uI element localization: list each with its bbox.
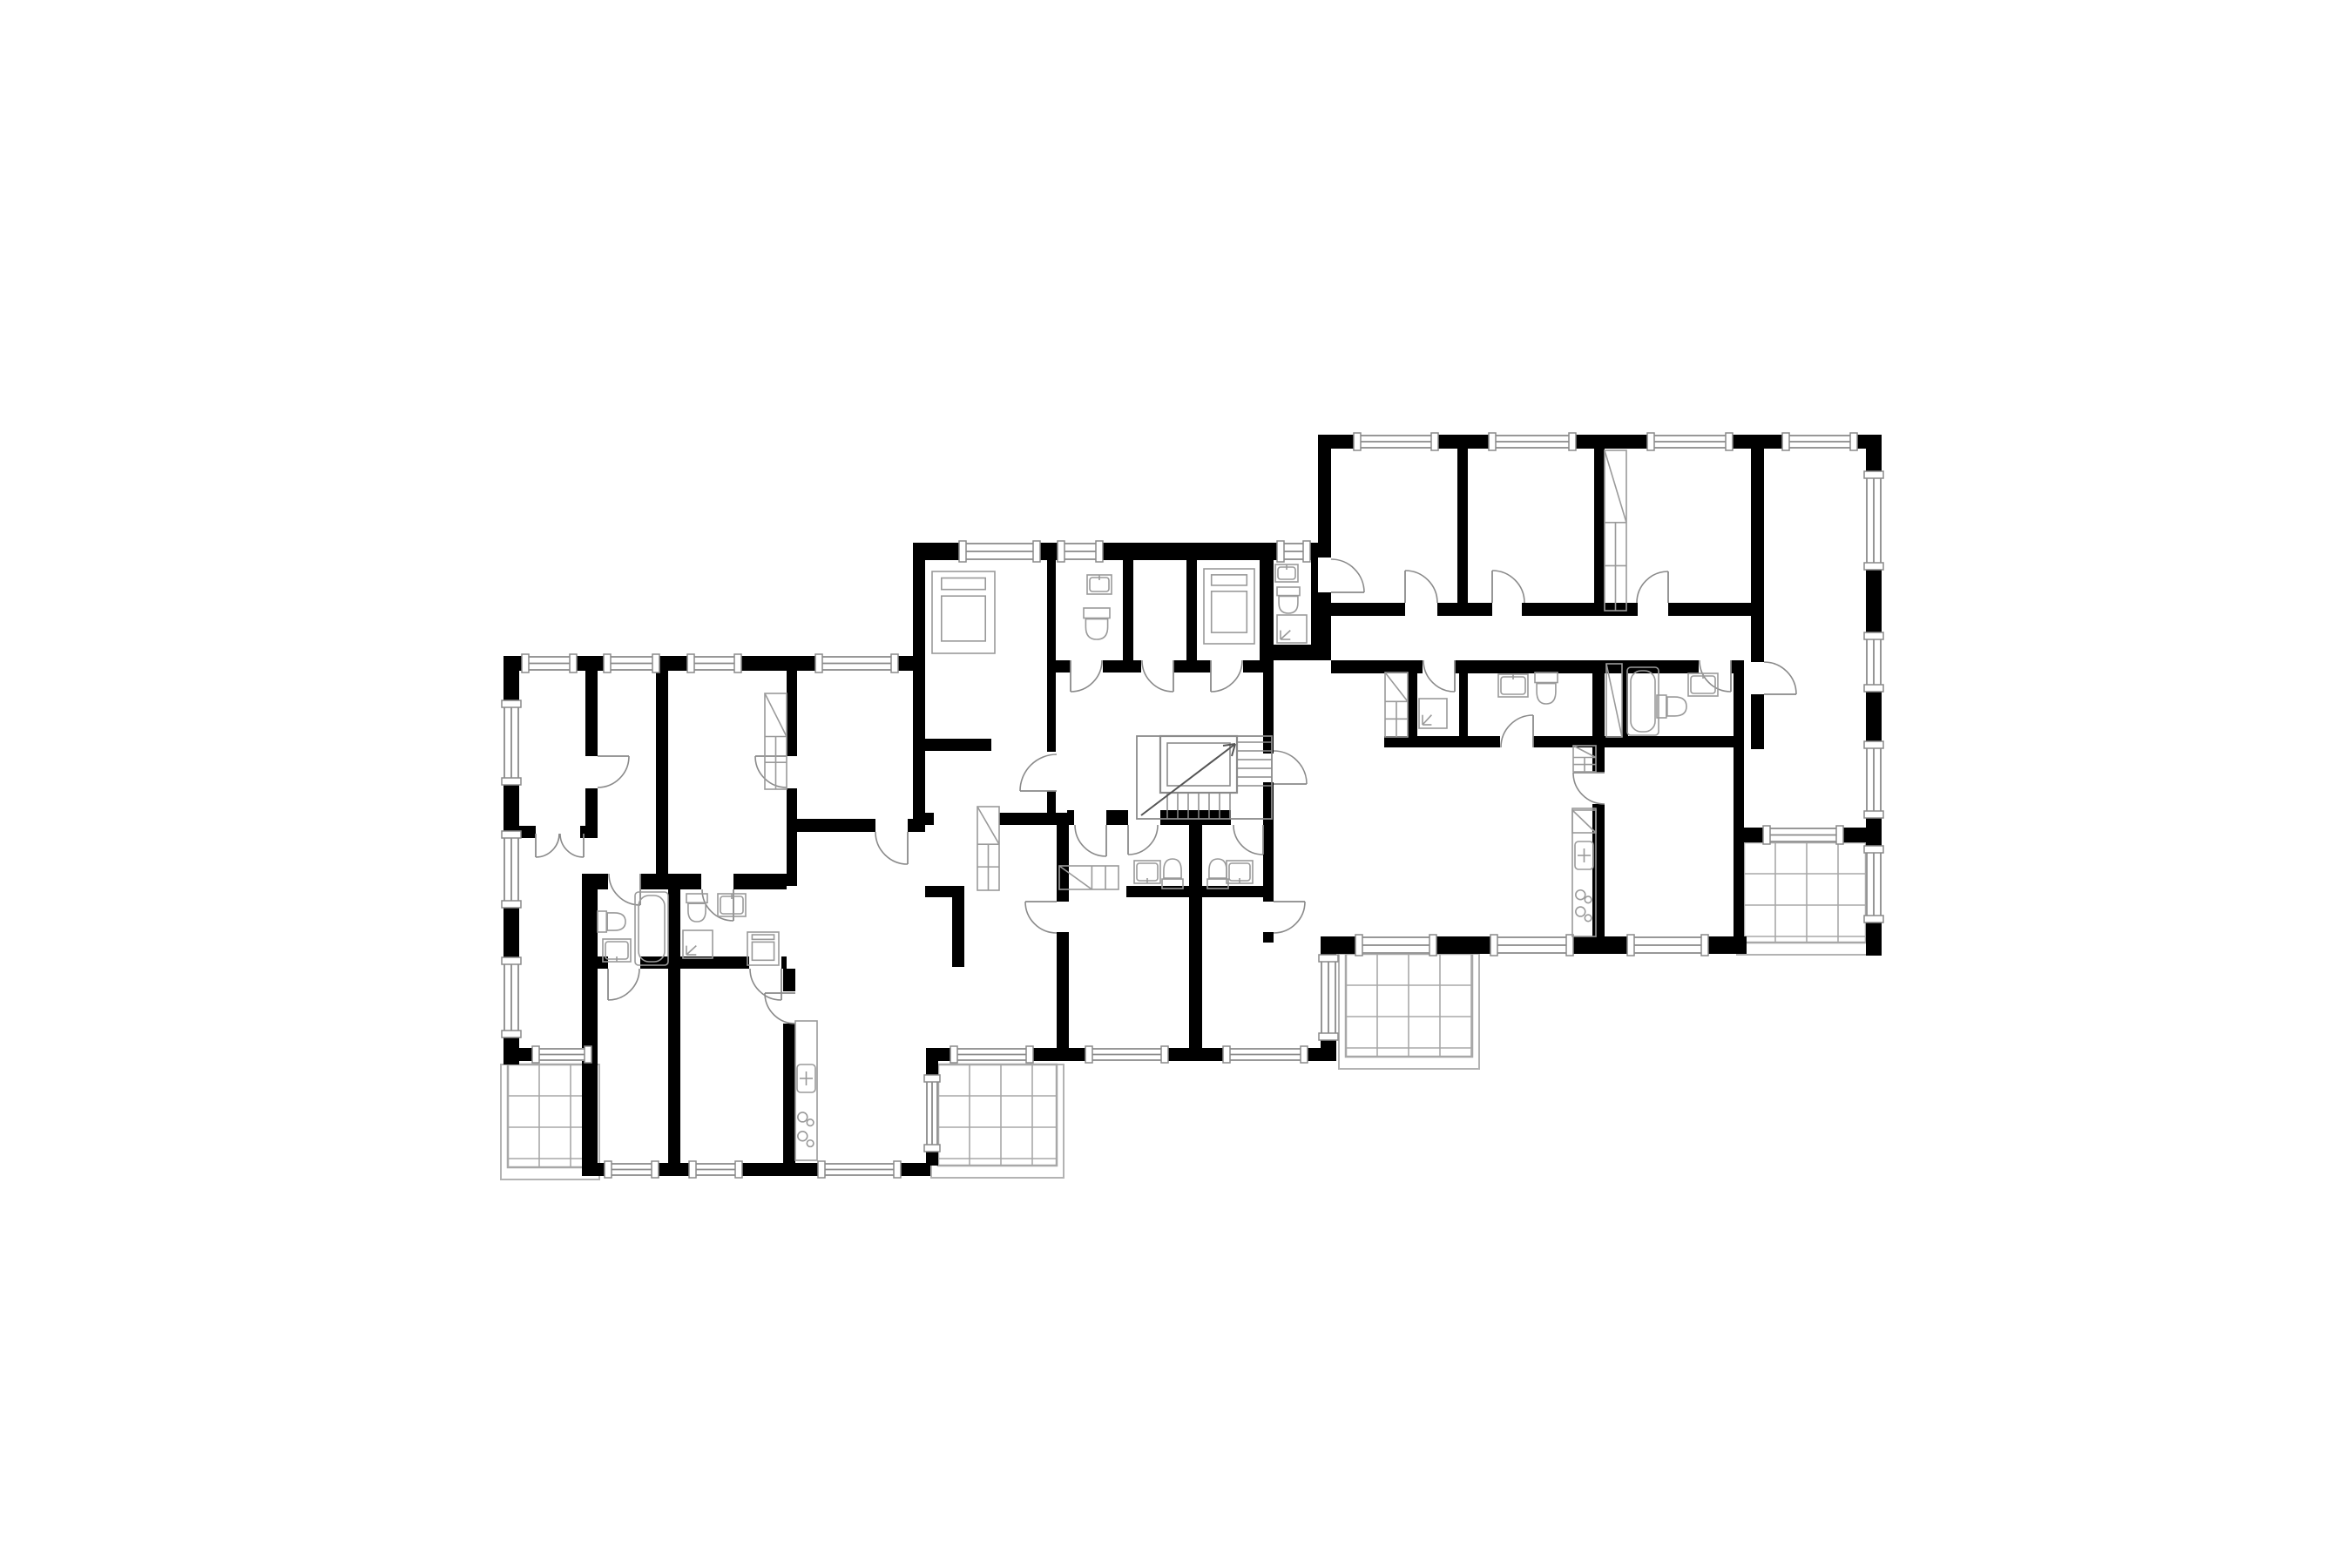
window-jamb bbox=[734, 654, 741, 672]
wall-segment bbox=[1067, 810, 1074, 825]
window-jamb bbox=[1864, 563, 1883, 570]
wall-segment bbox=[1331, 603, 1405, 616]
window-jamb bbox=[604, 654, 611, 672]
window bbox=[1864, 471, 1883, 570]
window-jamb bbox=[1701, 935, 1708, 956]
wall-segment bbox=[1455, 660, 1699, 673]
window bbox=[1782, 433, 1857, 450]
balcony bbox=[1737, 842, 1873, 955]
window-jamb bbox=[1033, 541, 1040, 562]
wall-segment bbox=[504, 671, 519, 704]
wall-segment bbox=[897, 1163, 930, 1176]
window-jamb bbox=[585, 1046, 591, 1063]
wall-segment bbox=[585, 671, 598, 756]
window-jamb bbox=[1429, 935, 1436, 956]
window-jamb bbox=[1864, 741, 1883, 748]
window-jamb bbox=[1864, 916, 1883, 923]
wall-segment bbox=[1126, 886, 1263, 897]
window-jamb bbox=[1490, 935, 1497, 956]
window-jamb bbox=[818, 1161, 825, 1178]
wall-segment bbox=[1592, 804, 1605, 936]
wall-segment bbox=[783, 969, 795, 991]
window-jamb bbox=[735, 1161, 742, 1178]
window bbox=[1627, 935, 1708, 956]
window-jamb bbox=[1161, 1046, 1168, 1063]
window bbox=[1490, 935, 1573, 956]
window bbox=[815, 654, 898, 672]
wall-segment bbox=[733, 874, 787, 889]
window-jamb bbox=[1864, 685, 1883, 692]
wall-segment bbox=[656, 671, 668, 874]
window-jamb bbox=[1569, 433, 1576, 450]
window-jamb bbox=[1223, 1046, 1230, 1063]
wall-segment bbox=[504, 1034, 519, 1064]
wall-segment bbox=[1186, 560, 1197, 660]
wall-segment bbox=[1436, 936, 1494, 954]
wall-segment bbox=[580, 826, 598, 838]
wall-segment bbox=[1866, 814, 1882, 849]
window bbox=[1319, 955, 1338, 1040]
window-jamb bbox=[502, 1031, 521, 1037]
window-jamb bbox=[1303, 541, 1310, 562]
wall-segment bbox=[1318, 435, 1357, 449]
window-jamb bbox=[1058, 541, 1064, 562]
floor-plan-page bbox=[0, 0, 2352, 1568]
wall-segment bbox=[1331, 660, 1423, 673]
window bbox=[1864, 632, 1883, 692]
wall-segment bbox=[504, 781, 519, 835]
balcony-deck bbox=[938, 1064, 1057, 1166]
wall-segment bbox=[1384, 736, 1500, 747]
wall-segment bbox=[582, 874, 598, 1163]
floor-plan-drawing bbox=[0, 0, 2352, 1568]
wall-segment bbox=[640, 874, 701, 889]
window-jamb bbox=[502, 831, 521, 838]
window-jamb bbox=[1277, 541, 1284, 562]
wall-segment bbox=[1734, 828, 1744, 943]
wall-segment bbox=[1734, 664, 1744, 828]
window bbox=[1277, 541, 1310, 562]
window bbox=[502, 831, 521, 908]
wall-segment bbox=[1318, 616, 1331, 660]
wall-segment bbox=[1057, 932, 1069, 1048]
wall-segment bbox=[1123, 560, 1133, 660]
wall-segment bbox=[1173, 660, 1211, 672]
window-jamb bbox=[891, 654, 898, 672]
window bbox=[1763, 826, 1843, 844]
wall-segment bbox=[1457, 449, 1468, 603]
wall-segment bbox=[787, 671, 797, 756]
wall-segment bbox=[1751, 694, 1764, 749]
wall-segment bbox=[1165, 1048, 1227, 1061]
wall-segment bbox=[598, 874, 608, 889]
wall-segment bbox=[1729, 435, 1786, 449]
window bbox=[1223, 1046, 1308, 1063]
window bbox=[502, 957, 521, 1037]
window bbox=[502, 700, 521, 785]
wall-segment bbox=[781, 956, 787, 969]
window bbox=[959, 541, 1040, 562]
window-jamb bbox=[1355, 935, 1362, 956]
window-jamb bbox=[1026, 1046, 1033, 1063]
window-jamb bbox=[1864, 846, 1883, 853]
wall-segment bbox=[1056, 660, 1071, 672]
balcony-deck bbox=[1744, 842, 1866, 943]
window-jamb bbox=[1782, 433, 1789, 450]
window-jamb bbox=[1850, 433, 1857, 450]
window-jamb bbox=[924, 1075, 940, 1082]
balcony-deck bbox=[508, 1064, 592, 1167]
window-jamb bbox=[924, 1145, 940, 1152]
wall-segment bbox=[668, 889, 680, 956]
wall-segment bbox=[913, 813, 934, 825]
wall-segment bbox=[1533, 736, 1734, 747]
window-jamb bbox=[689, 1161, 696, 1178]
wall-segment bbox=[926, 1048, 938, 1078]
window bbox=[605, 1161, 659, 1178]
window-jamb bbox=[522, 654, 529, 672]
wall-segment bbox=[1751, 449, 1764, 662]
window-jamb bbox=[1085, 1046, 1092, 1063]
wall-segment bbox=[1854, 435, 1882, 449]
wall-segment bbox=[1047, 560, 1056, 752]
window bbox=[1058, 541, 1103, 562]
wall-segment bbox=[925, 739, 991, 751]
window bbox=[1354, 433, 1438, 450]
window-jamb bbox=[1566, 935, 1573, 956]
wall-segment bbox=[999, 813, 1067, 825]
window-jamb bbox=[1627, 935, 1634, 956]
window-jamb bbox=[1864, 471, 1883, 478]
window-jamb bbox=[1096, 541, 1103, 562]
wall-segment bbox=[1311, 560, 1318, 645]
window bbox=[1085, 1046, 1168, 1063]
window bbox=[689, 1161, 742, 1178]
wall-segment bbox=[668, 969, 680, 1163]
wall-segment bbox=[504, 904, 519, 961]
window bbox=[1864, 846, 1883, 923]
window-jamb bbox=[959, 541, 966, 562]
wall-segment bbox=[1522, 603, 1638, 616]
wall-segment bbox=[797, 819, 875, 832]
wall-segment bbox=[1160, 810, 1231, 825]
window-jamb bbox=[1864, 811, 1883, 818]
window-jamb bbox=[502, 700, 521, 707]
balcony bbox=[931, 1064, 1064, 1178]
window-jamb bbox=[1647, 433, 1654, 450]
wall-segment bbox=[1106, 810, 1128, 825]
window-jamb bbox=[605, 1161, 612, 1178]
wall-segment bbox=[925, 886, 964, 897]
window-jamb bbox=[1726, 433, 1733, 450]
wall-segment bbox=[1866, 566, 1882, 636]
wall-segment bbox=[1099, 543, 1281, 560]
window-jamb bbox=[1864, 632, 1883, 639]
wall-segment bbox=[1263, 932, 1274, 943]
wall-segment bbox=[783, 1024, 795, 1163]
wall-segment bbox=[1030, 1048, 1089, 1061]
window-jamb bbox=[687, 654, 694, 672]
wall-segment bbox=[739, 1163, 821, 1176]
window-jamb bbox=[570, 654, 577, 672]
window bbox=[1647, 433, 1733, 450]
wall-segment bbox=[913, 560, 925, 825]
wall-segment bbox=[1435, 435, 1492, 449]
window-jamb bbox=[1489, 433, 1496, 450]
window bbox=[1489, 433, 1576, 450]
window-jamb bbox=[502, 957, 521, 964]
window-jamb bbox=[652, 1161, 659, 1178]
window-jamb bbox=[1301, 1046, 1308, 1063]
window bbox=[687, 654, 741, 672]
wall-segment bbox=[913, 543, 963, 560]
window-jamb bbox=[502, 778, 521, 785]
wall-segment bbox=[1437, 603, 1492, 616]
wall-segment bbox=[1705, 936, 1747, 954]
wall-segment bbox=[585, 788, 598, 826]
wall-segment bbox=[1318, 449, 1331, 558]
window-jamb bbox=[1319, 1033, 1338, 1040]
wall-segment bbox=[1189, 825, 1202, 1048]
wall-segment bbox=[952, 897, 964, 967]
window bbox=[950, 1046, 1033, 1063]
window-jamb bbox=[815, 654, 822, 672]
window bbox=[818, 1161, 901, 1178]
window-jamb bbox=[894, 1161, 901, 1178]
window-jamb bbox=[1319, 955, 1338, 962]
window-jamb bbox=[1431, 433, 1438, 450]
wall-segment bbox=[1263, 825, 1274, 902]
window-jamb bbox=[652, 654, 659, 672]
window-jamb bbox=[1763, 826, 1770, 844]
wall-segment bbox=[1866, 688, 1882, 745]
wall-segment bbox=[1047, 791, 1056, 813]
wall-segment bbox=[1572, 435, 1651, 449]
window-jamb bbox=[532, 1046, 539, 1063]
window-jamb bbox=[1354, 433, 1361, 450]
wall-segment bbox=[1103, 660, 1141, 672]
window bbox=[522, 654, 577, 672]
window-jamb bbox=[950, 1046, 957, 1063]
window-jamb bbox=[502, 901, 521, 908]
wall-segment bbox=[1668, 603, 1751, 616]
wall-segment bbox=[1866, 919, 1882, 956]
wall-segment bbox=[1318, 592, 1331, 616]
window bbox=[1864, 741, 1883, 818]
wall-segment bbox=[519, 826, 536, 838]
wall-segment bbox=[1594, 449, 1605, 603]
balcony bbox=[1339, 954, 1479, 1069]
window bbox=[924, 1075, 940, 1152]
window bbox=[1355, 935, 1436, 956]
wall-segment bbox=[1263, 645, 1318, 660]
window bbox=[604, 654, 659, 672]
window-jamb bbox=[1836, 826, 1843, 844]
window bbox=[532, 1046, 591, 1063]
wall-segment bbox=[787, 788, 797, 886]
wall-segment bbox=[655, 1163, 693, 1176]
wall-segment bbox=[1570, 936, 1631, 954]
